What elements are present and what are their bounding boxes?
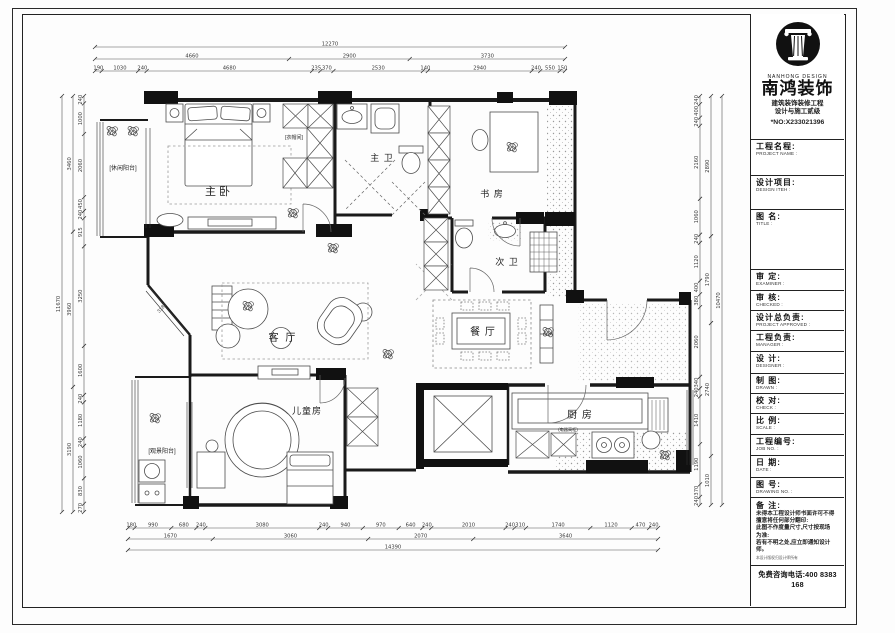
field-label-cn: 工程负责: xyxy=(756,333,844,342)
titleblock-field-row: 设计总负责:PROJECT APPROVED : xyxy=(751,311,844,331)
titleblock-field-row: 审 核:CHECKED : xyxy=(751,291,844,311)
field-label-cn: 设计总负责: xyxy=(756,313,844,322)
field-label-en: CHECKED : xyxy=(756,302,844,308)
titleblock-field-row: 图 名:TITLE : xyxy=(751,210,844,270)
field-label-en: PROJECT APPROVED : xyxy=(756,322,844,328)
field-label-cn: 审 核: xyxy=(756,293,844,302)
field-label-cn: 工程编号: xyxy=(756,437,844,446)
titleblock-field-row: 制 图:DRAWN : xyxy=(751,374,844,394)
field-label-en: DESIGNER : xyxy=(756,363,844,369)
cert-line2: 设计与施工贰级 xyxy=(751,108,844,116)
field-label-cn: 图 名: xyxy=(756,212,844,221)
field-label-cn: 校 对: xyxy=(756,396,844,405)
field-label-cn: 比 例: xyxy=(756,416,844,425)
field-label-cn: 设 计: xyxy=(756,354,844,363)
title-block-fields: 工程名程:PROJECT NAME :设计项目:DESIGN ITEH :图 名… xyxy=(751,140,844,498)
field-label-en: DRAWING NO. : xyxy=(756,489,844,495)
titleblock-field-row: 校 对:CHECK : xyxy=(751,394,844,414)
titleblock-field-row: 比 例:SCALE : xyxy=(751,414,844,435)
hotline: 免费咨询电话:400 8383 168 xyxy=(751,565,844,593)
logo-block: NANHONG DESIGN 南鸿装饰 建筑装饰装修工程 设计与施工贰级 *NO… xyxy=(751,14,844,140)
license-no: *NO:X233021396 xyxy=(751,119,844,126)
field-label-cn: 审 定: xyxy=(756,272,844,281)
notes-label: 备 注: xyxy=(756,501,841,510)
note-line: 此图不作度量尺寸,尺寸按现场 xyxy=(756,525,841,532)
nanhong-column-logo-icon xyxy=(775,21,821,67)
field-label-en: DRAWN : xyxy=(756,385,844,391)
field-label-en: PROJECT NAME : xyxy=(756,151,844,157)
notes-section: 备 注: 未得本工程设计师书面许可不得擅意将任何部分翻印:此图不作度量尺寸,尺寸… xyxy=(751,498,844,561)
field-label-en: JOB NO. : xyxy=(756,446,844,452)
field-label-en: EXAMINER : xyxy=(756,281,844,287)
titleblock-field-row: 工程编号:JOB NO. : xyxy=(751,435,844,456)
field-label-cn: 工程名程: xyxy=(756,142,844,151)
titleblock-field-row: 审 定:EXAMINER : xyxy=(751,270,844,291)
titleblock-field-row: 图 号:DRAWING NO. : xyxy=(751,478,844,498)
titleblock-field-row: 设 计:DESIGNER : xyxy=(751,352,844,374)
field-label-en: CHECK : xyxy=(756,405,844,411)
field-label-en: DESIGN ITEH : xyxy=(756,187,844,193)
field-label-cn: 制 图: xyxy=(756,376,844,385)
field-label-en: DATE : xyxy=(756,467,844,473)
titleblock-field-row: 日 期:DATE : xyxy=(751,456,844,478)
field-label-en: TITLE : xyxy=(756,221,844,227)
note-line: 为准: xyxy=(756,533,841,540)
cert-line1: 建筑装饰装修工程 xyxy=(751,100,844,108)
drawing-sheet: 主卧 主 卫 书 房 次 卫 客 厅 餐 厅 儿童房 厨 房 [休闲阳台] [观… xyxy=(0,0,895,633)
note-line: 若有不明之处,应立即通知设计 xyxy=(756,540,841,547)
field-label-cn: 设计项目: xyxy=(756,178,844,187)
field-label-cn: 图 号: xyxy=(756,480,844,489)
field-label-en: MANAGER : xyxy=(756,342,844,348)
note-line: 师。 xyxy=(756,547,841,554)
field-label-en: SCALE : xyxy=(756,425,844,431)
titleblock-field-row: 工程名程:PROJECT NAME : xyxy=(751,140,844,176)
sheet-inner-frame xyxy=(22,14,846,608)
titleblock-field-row: 工程负责:MANAGER : xyxy=(751,331,844,352)
title-block: NANHONG DESIGN 南鸿装饰 建筑装饰装修工程 设计与施工贰级 *NO… xyxy=(750,14,844,606)
titleblock-field-row: 设计项目:DESIGN ITEH : xyxy=(751,176,844,210)
fine-print: 本设计版权归设计师所有 xyxy=(756,556,841,561)
brand-cn: 南鸿装饰 xyxy=(751,80,844,98)
field-label-cn: 日 期: xyxy=(756,458,844,467)
